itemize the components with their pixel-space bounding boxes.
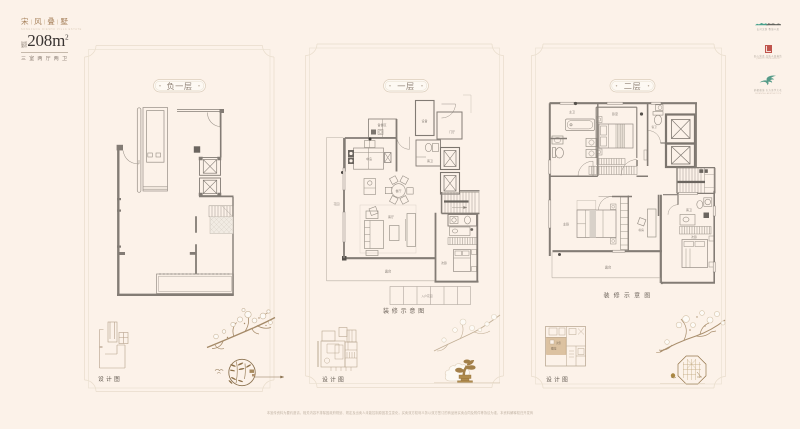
svg-text:次卧: 次卧 <box>441 260 447 265</box>
svg-text:装修示意图: 装修示意图 <box>383 307 427 315</box>
svg-text:花园: 花园 <box>333 201 339 206</box>
svg-text:二层: 二层 <box>624 82 641 91</box>
svg-text:书房: 书房 <box>638 227 644 232</box>
svg-text:客卫: 客卫 <box>652 125 658 129</box>
svg-text:入户花园: 入户花园 <box>421 294 432 298</box>
svg-text:门厅: 门厅 <box>449 129 455 134</box>
svg-text:装修示意图: 装修示意图 <box>603 292 654 300</box>
svg-text:设计图: 设计图 <box>322 376 346 384</box>
svg-text:卧室: 卧室 <box>612 111 618 116</box>
svg-text:露台: 露台 <box>385 269 391 274</box>
svg-text:备餐区: 备餐区 <box>377 122 386 127</box>
svg-text:负一层: 负一层 <box>166 81 192 91</box>
svg-text:客厅: 客厅 <box>388 214 394 219</box>
svg-text:一层: 一层 <box>397 82 414 91</box>
svg-text:中岛: 中岛 <box>366 156 372 161</box>
svg-text:露台: 露台 <box>605 265 611 270</box>
svg-text:主卧: 主卧 <box>563 222 570 227</box>
svg-text:客卫: 客卫 <box>686 207 692 212</box>
svg-text:设计图: 设计图 <box>98 375 122 383</box>
svg-text:主卫: 主卫 <box>569 109 575 114</box>
svg-text:客卫: 客卫 <box>427 158 433 163</box>
svg-text:次卧: 次卧 <box>556 341 562 345</box>
svg-text:次卧: 次卧 <box>691 234 697 239</box>
svg-text:本宣传资料为要约邀请，相关内容不排除因政府规划、规定及出卖人: 本宣传资料为要约邀请，相关内容不排除因政府规划、规定及出卖人未能控制原因发生变化… <box>267 410 533 415</box>
svg-text:餐厅: 餐厅 <box>395 188 401 193</box>
svg-text:确位: 确位 <box>551 347 557 351</box>
svg-text:设计图: 设计图 <box>546 376 570 384</box>
svg-text:设备: 设备 <box>421 118 427 123</box>
